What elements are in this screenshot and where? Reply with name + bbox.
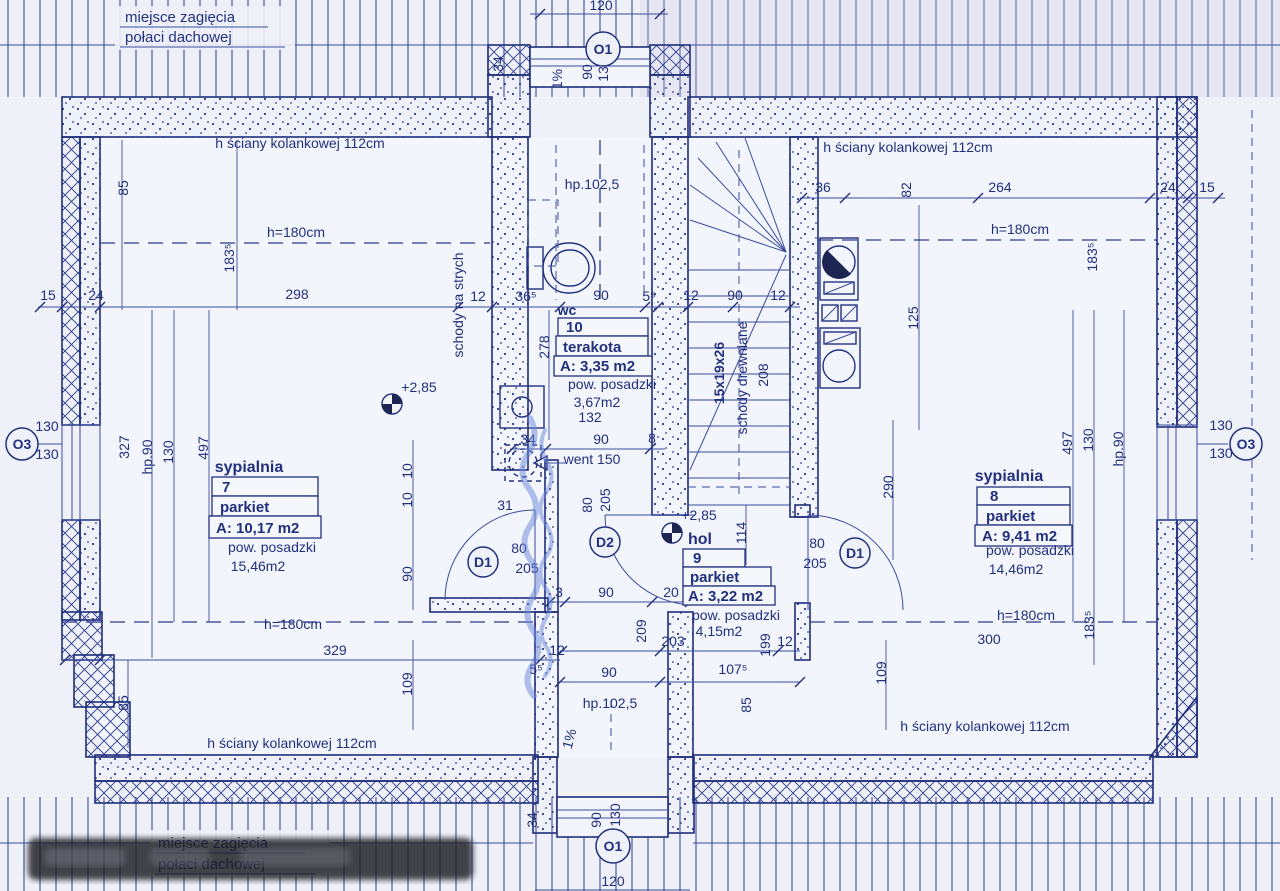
- svg-text:D1: D1: [474, 554, 492, 570]
- room-7-area-label: pow. posadzki: [228, 539, 316, 555]
- svg-text:205: 205: [803, 555, 827, 571]
- svg-text:183⁵: 183⁵: [1084, 242, 1100, 271]
- dim-label: 130: [35, 418, 59, 434]
- dim-label: hp.90: [139, 439, 155, 474]
- fold-note-top: miejsce zagięcia połaci dachowej: [115, 6, 295, 50]
- room-10-area-label: pow. posadzki: [568, 376, 656, 392]
- room-10-floor-area: 3,67m2: [574, 394, 621, 410]
- dim-label: 34: [524, 812, 540, 828]
- dim-label: schody na strych: [450, 252, 466, 357]
- dim-label: 90: [598, 584, 614, 600]
- marker-d1: D1: [840, 538, 870, 568]
- svg-text:10: 10: [399, 463, 415, 479]
- svg-text:120: 120: [589, 0, 613, 13]
- dim-label: 300: [977, 631, 1001, 647]
- svg-text:hp.90: hp.90: [139, 439, 155, 474]
- dim-label: 329: [323, 642, 347, 658]
- dim-label: 132: [578, 409, 602, 425]
- svg-text:130: 130: [35, 446, 59, 462]
- svg-text:327: 327: [116, 435, 132, 459]
- dim-label: 80: [579, 497, 595, 513]
- room-7-floor-area: 15,46m2: [231, 558, 286, 574]
- dim-label: 205: [597, 488, 613, 512]
- svg-text:209: 209: [633, 619, 649, 643]
- fold-note-top-line2: połaci dachowej: [125, 29, 232, 46]
- dim-label: 12: [470, 288, 486, 304]
- svg-text:85: 85: [738, 697, 754, 713]
- svg-text:80: 80: [809, 535, 825, 551]
- dim-label: 183⁵: [1084, 242, 1100, 271]
- svg-text:114: 114: [733, 522, 749, 545]
- window-o3-left: [38, 425, 100, 520]
- svg-text:5⁵: 5⁵: [642, 288, 656, 304]
- dim-label: 12: [683, 287, 699, 303]
- svg-text:130: 130: [35, 418, 59, 434]
- svg-text:O1: O1: [594, 41, 613, 57]
- dim-label: 107⁵: [718, 661, 747, 677]
- svg-text:O3: O3: [1237, 436, 1256, 452]
- fold-note-top-line1: miejsce zagięcia: [125, 9, 236, 26]
- svg-text:82: 82: [898, 182, 914, 198]
- dim-label: 5⁵: [642, 288, 656, 304]
- dim-label: 114: [733, 522, 749, 545]
- room-7-name: sypialnia: [215, 459, 284, 476]
- svg-text:10: 10: [399, 492, 415, 508]
- svg-text:183⁵: 183⁵: [221, 243, 237, 272]
- svg-text:107⁵: 107⁵: [718, 661, 747, 677]
- svg-text:8: 8: [648, 430, 656, 446]
- dim-label: 90: [593, 287, 609, 303]
- dim-label: h=180cm: [991, 221, 1049, 237]
- svg-text:D2: D2: [596, 534, 614, 550]
- svg-text:90: 90: [399, 566, 415, 582]
- svg-text:290: 290: [880, 475, 896, 499]
- dim-label: 80: [809, 535, 825, 551]
- dim-label: 130: [1209, 417, 1233, 433]
- dim-label: 205: [803, 555, 827, 571]
- redacted-watermark: [28, 838, 473, 880]
- floor-plan-canvas: miejsce zagięcia połaci dachowej miejsce…: [0, 0, 1280, 891]
- dim-label: h ściany kolankowej 112cm: [215, 135, 384, 151]
- dim-label: 209: [633, 619, 649, 643]
- svg-text:130: 130: [1209, 445, 1233, 461]
- svg-text:90: 90: [593, 431, 609, 447]
- room-8-number: 8: [990, 488, 998, 505]
- dim-label: h=180cm: [267, 224, 325, 240]
- svg-text:hp.102,5: hp.102,5: [583, 695, 638, 711]
- marker-o3: O3: [1230, 428, 1262, 460]
- dim-label: 120: [589, 0, 613, 13]
- dim-label: 15: [1199, 179, 1215, 195]
- dim-label: 10: [399, 463, 415, 479]
- svg-text:278: 278: [536, 335, 552, 359]
- svg-text:wc: wc: [557, 302, 577, 318]
- svg-text:90: 90: [727, 287, 743, 303]
- dim-label: 130: [607, 803, 623, 827]
- svg-text:34: 34: [524, 812, 540, 828]
- svg-text:90: 90: [588, 812, 604, 828]
- dim-label: hp.102,5: [565, 176, 620, 192]
- svg-text:36: 36: [815, 179, 831, 195]
- dim-label: 298: [285, 286, 309, 302]
- room-8-floor-area: 14,46m2: [989, 561, 1044, 577]
- dim-label: 82: [898, 182, 914, 198]
- svg-text:hp.90: hp.90: [1110, 431, 1126, 466]
- room-9-floor: parkiet: [690, 569, 739, 586]
- svg-text:15: 15: [1199, 179, 1215, 195]
- svg-text:203: 203: [661, 633, 685, 649]
- dim-label: 85: [738, 697, 754, 713]
- svg-text:h ściany kolankowej 112cm: h ściany kolankowej 112cm: [900, 718, 1069, 734]
- dim-label: 90: [727, 287, 743, 303]
- room-9-name: hol: [688, 531, 712, 548]
- svg-text:109: 109: [873, 661, 889, 685]
- dim-label: schody drewniane: [734, 321, 750, 434]
- dim-label: 497: [1059, 431, 1075, 455]
- dim-label: 90: [579, 64, 595, 80]
- dim-label: went 150: [563, 451, 621, 467]
- dim-label: 90: [399, 566, 415, 582]
- svg-text:D1: D1: [846, 545, 864, 561]
- svg-text:264: 264: [988, 179, 1012, 195]
- dim-label: 208: [755, 363, 771, 387]
- dim-label: 199: [757, 633, 773, 657]
- room-9-area: A: 3,22 m2: [688, 588, 763, 605]
- dim-label: 85: [115, 695, 131, 711]
- dim-label: 85: [115, 180, 131, 196]
- dim-label: 130: [35, 446, 59, 462]
- svg-text:31: 31: [497, 497, 513, 513]
- room-7-floor: parkiet: [220, 499, 269, 516]
- svg-text:h ściany kolankowej 112cm: h ściany kolankowej 112cm: [215, 135, 384, 151]
- dim-label: h ściany kolankowej 112cm: [207, 735, 376, 751]
- svg-text:24: 24: [1160, 179, 1176, 195]
- dim-label: 327: [116, 435, 132, 459]
- svg-text:3: 3: [555, 584, 563, 600]
- svg-text:205: 205: [597, 488, 613, 512]
- svg-text:109: 109: [399, 672, 415, 696]
- room-8-name: sypialnia: [975, 468, 1044, 485]
- svg-text:1%: 1%: [549, 69, 565, 89]
- svg-text:120: 120: [601, 873, 625, 889]
- dim-label: 12: [770, 287, 786, 303]
- dim-label: 90: [588, 812, 604, 828]
- svg-text:schody drewniane: schody drewniane: [734, 321, 750, 434]
- dim-label: 3: [555, 584, 563, 600]
- svg-text:h=180cm: h=180cm: [991, 221, 1049, 237]
- svg-text:90: 90: [598, 584, 614, 600]
- dim-label: 120: [601, 873, 625, 889]
- room-8-floor: parkiet: [986, 508, 1035, 525]
- dim-label: 15x19x26: [711, 342, 727, 405]
- dim-label: hp.102,5: [583, 695, 638, 711]
- svg-text:199: 199: [757, 633, 773, 657]
- svg-text:20: 20: [663, 584, 679, 600]
- svg-text:130: 130: [607, 803, 623, 827]
- dim-label: 130: [1209, 445, 1233, 461]
- room-10-area: A: 3,35 m2: [560, 358, 635, 375]
- svg-text:36⁵: 36⁵: [515, 288, 536, 304]
- dim-label: 183⁵: [1081, 610, 1097, 639]
- room-10-floor: terakota: [563, 339, 622, 356]
- svg-text:497: 497: [195, 436, 211, 460]
- svg-text:h=180cm: h=180cm: [997, 607, 1055, 623]
- dim-label: 130: [1080, 428, 1096, 452]
- svg-text:85: 85: [115, 695, 131, 711]
- dim-label: +2,85: [401, 379, 437, 395]
- svg-text:130: 130: [160, 440, 176, 464]
- dim-label: 125: [905, 306, 921, 330]
- dim-label: 203: [661, 633, 685, 649]
- svg-text:300: 300: [977, 631, 1001, 647]
- svg-text:90: 90: [601, 664, 617, 680]
- svg-text:298: 298: [285, 286, 309, 302]
- svg-text:130: 130: [1080, 428, 1096, 452]
- dim-label: 24: [88, 287, 104, 303]
- dim-label: 15: [40, 287, 56, 303]
- marker-o3: O3: [6, 428, 38, 460]
- svg-text:15: 15: [40, 287, 56, 303]
- svg-text:hp.102,5: hp.102,5: [565, 176, 620, 192]
- marker-d2: D2: [590, 527, 620, 557]
- floor-plan-page: miejsce zagięcia połaci dachowej miejsce…: [0, 0, 1280, 891]
- dim-label: 24: [1160, 179, 1176, 195]
- svg-text:15x19x26: 15x19x26: [711, 342, 727, 405]
- dim-label: 183⁵: [221, 243, 237, 272]
- svg-text:+2,85: +2,85: [401, 379, 437, 395]
- svg-text:+2,85: +2,85: [681, 507, 717, 523]
- svg-text:h=180cm: h=180cm: [267, 224, 325, 240]
- dim-label: h ściany kolankowej 112cm: [823, 139, 992, 155]
- svg-text:O1: O1: [604, 838, 623, 854]
- dim-label: h=180cm: [997, 607, 1055, 623]
- dim-label: 36: [815, 179, 831, 195]
- dim-label: 8: [648, 430, 656, 446]
- dim-label: 278: [536, 335, 552, 359]
- dim-label: 109: [873, 661, 889, 685]
- svg-text:90: 90: [593, 287, 609, 303]
- svg-text:34: 34: [490, 56, 506, 72]
- dim-label: 34: [490, 56, 506, 72]
- dim-label: 1%: [549, 69, 565, 89]
- level-marker-room7: [382, 394, 402, 414]
- dim-label: hp.90: [1110, 431, 1126, 466]
- dim-label: 20: [663, 584, 679, 600]
- svg-text:183⁵: 183⁵: [1081, 610, 1097, 639]
- dim-label: 90: [593, 431, 609, 447]
- room-9-number: 9: [693, 550, 701, 567]
- marker-d1: D1: [468, 547, 498, 577]
- svg-text:12: 12: [470, 288, 486, 304]
- dim-label: 31: [497, 497, 513, 513]
- dim-label: 264: [988, 179, 1012, 195]
- svg-text:90: 90: [579, 64, 595, 80]
- svg-text:132: 132: [578, 409, 602, 425]
- svg-text:12: 12: [683, 287, 699, 303]
- dim-label: 90: [601, 664, 617, 680]
- dim-label: 10: [399, 492, 415, 508]
- room-7-area: A: 10,17 m2: [216, 520, 299, 537]
- marker-o1: O1: [596, 829, 630, 863]
- svg-text:125: 125: [905, 306, 921, 330]
- svg-text:329: 329: [323, 642, 347, 658]
- room-8-area-label: pow. posadzki: [986, 542, 1074, 558]
- room-10-number: 10: [566, 319, 583, 336]
- svg-text:497: 497: [1059, 431, 1075, 455]
- dim-label: +2,85: [681, 507, 717, 523]
- dim-label: wc: [557, 302, 577, 318]
- window-o3-right: [1157, 425, 1228, 520]
- dim-label: 497: [195, 436, 211, 460]
- svg-text:12: 12: [777, 633, 793, 649]
- svg-text:85: 85: [115, 180, 131, 196]
- svg-text:h=180cm: h=180cm: [264, 616, 322, 632]
- svg-text:went 150: went 150: [563, 451, 621, 467]
- dim-label: 109: [399, 672, 415, 696]
- svg-text:h ściany kolankowej 112cm: h ściany kolankowej 112cm: [823, 139, 992, 155]
- svg-text:12: 12: [770, 287, 786, 303]
- marker-o1: O1: [586, 32, 620, 66]
- dim-label: h ściany kolankowej 112cm: [900, 718, 1069, 734]
- dim-label: 36⁵: [515, 288, 536, 304]
- dim-label: 12: [777, 633, 793, 649]
- svg-text:O3: O3: [13, 436, 32, 452]
- svg-text:h ściany kolankowej 112cm: h ściany kolankowej 112cm: [207, 735, 376, 751]
- room-9-area-label: pow. posadzki: [692, 607, 780, 623]
- svg-text:24: 24: [88, 287, 104, 303]
- svg-text:schody na strych: schody na strych: [450, 252, 466, 357]
- svg-text:130: 130: [1209, 417, 1233, 433]
- svg-text:208: 208: [755, 363, 771, 387]
- room-7-number: 7: [222, 479, 230, 496]
- dim-label: h=180cm: [264, 616, 322, 632]
- level-marker-hol: [662, 523, 682, 543]
- room-9-floor-area: 4,15m2: [696, 623, 743, 639]
- dim-label: 130: [160, 440, 176, 464]
- svg-text:80: 80: [579, 497, 595, 513]
- dim-label: 290: [880, 475, 896, 499]
